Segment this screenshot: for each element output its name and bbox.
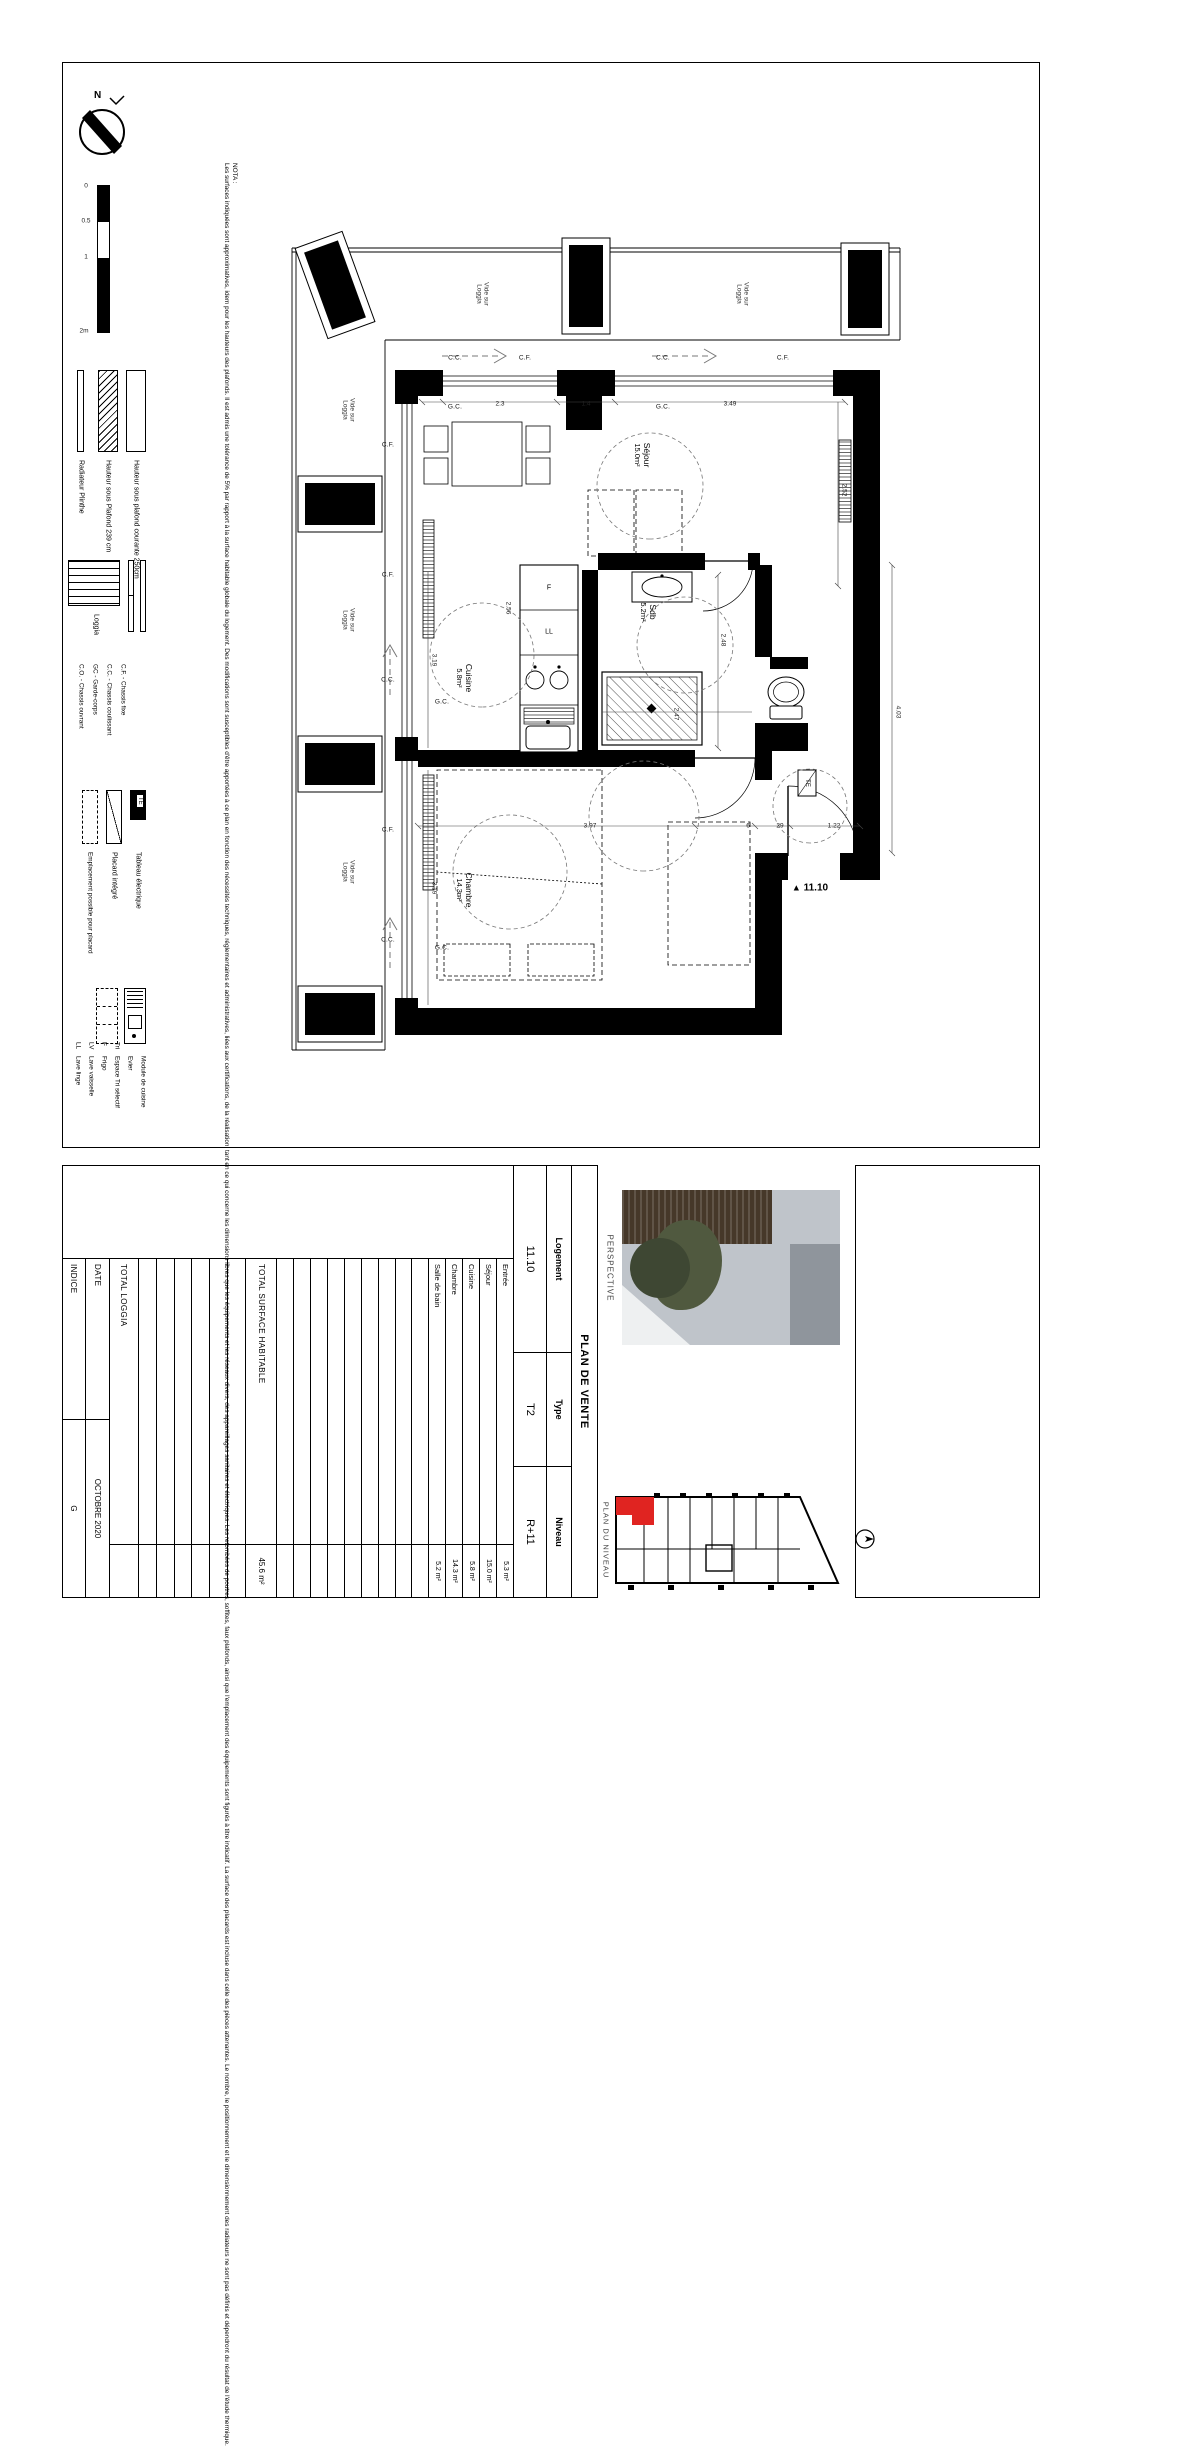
empty-row bbox=[344, 1259, 361, 1597]
perspective-caption: PERSPECTIVE bbox=[606, 1234, 615, 1301]
kitchen-block bbox=[520, 565, 578, 752]
window-label-cc: C.C. bbox=[448, 355, 462, 362]
window-label-gc: G.C. bbox=[435, 945, 449, 952]
legend-abbr-cf: C.F. - Chassis fixe bbox=[120, 664, 127, 716]
empty-row bbox=[191, 1259, 209, 1597]
spacer-column bbox=[63, 1166, 513, 1259]
dim: 3.19 bbox=[431, 882, 438, 895]
legend-kitchen-2: Espace Tri sélectif bbox=[114, 1056, 121, 1108]
plan-de-vente-sheet: { "sheet": { "nota_title": "NOTA :", "no… bbox=[0, 0, 1200, 1698]
legend-kitchen-1: Evier bbox=[127, 1056, 134, 1071]
niveau-value: R+11 bbox=[514, 1467, 546, 1597]
dim: 2.47 bbox=[673, 708, 680, 721]
room-area: 5.2 m² bbox=[429, 1544, 445, 1597]
dim: 1.4 bbox=[581, 401, 590, 408]
north-n-label: N bbox=[94, 90, 101, 101]
nota-block: NOTA : Les surfaces indiquées sont appro… bbox=[221, 163, 238, 353]
type-header: Type bbox=[547, 1353, 571, 1467]
legend-label-te: Tableau électrique bbox=[135, 852, 142, 909]
legend-abbr-gc: GC - Garde-corps bbox=[92, 664, 99, 715]
table-row: Salle de bain5.2 m² bbox=[428, 1259, 445, 1597]
total-surface-label: TOTAL SURFACE HABITABLE bbox=[257, 1259, 266, 1544]
table-row: Chambre14.3 m² bbox=[445, 1259, 462, 1597]
table-row: Entrée5.3 m² bbox=[496, 1259, 513, 1597]
empty-row bbox=[361, 1259, 378, 1597]
mini-compass-icon bbox=[852, 1526, 878, 1552]
date-value: OCTOBRE 2020 bbox=[86, 1419, 109, 1597]
indice-row: INDICE G bbox=[63, 1259, 85, 1597]
legend-label-emplacement: Emplacement possible pour placard bbox=[87, 852, 94, 954]
unit-marker: ▲ 11.10 bbox=[792, 883, 828, 894]
legend-te-text: TE bbox=[137, 795, 143, 807]
legend-loggia-icon bbox=[68, 560, 120, 606]
scale-bar bbox=[97, 185, 110, 333]
legend-label-loggia: Loggia bbox=[93, 614, 100, 635]
north-compass-icon: N bbox=[68, 88, 140, 168]
table bbox=[452, 422, 522, 486]
room-label-chambre: Chambre 14.3m² bbox=[455, 873, 473, 908]
window-label-gc: G.C. bbox=[656, 404, 670, 411]
empty-row bbox=[411, 1259, 428, 1597]
empty-row bbox=[395, 1259, 412, 1597]
indice-label: INDICE bbox=[70, 1259, 79, 1419]
total-surface-value: 45.6 m² bbox=[246, 1544, 276, 1597]
legend-sink-icon bbox=[124, 988, 146, 1044]
washer-label: LL bbox=[545, 629, 553, 636]
dim: 2.48 bbox=[720, 634, 727, 647]
total-loggia-label: TOTAL LOGGIA bbox=[119, 1259, 128, 1544]
dim: 3.97 bbox=[584, 823, 597, 830]
legend-kitchen-abbr-5: LL bbox=[75, 1042, 82, 1049]
logo-box bbox=[855, 1165, 1040, 1598]
dim: 6 bbox=[746, 823, 750, 830]
nota-body: Les surfaces indiquées sont approximativ… bbox=[221, 163, 229, 353]
table-row: Cuisine5.8 m² bbox=[462, 1259, 479, 1597]
scale-tick: 2m bbox=[79, 328, 88, 335]
legend-kitchen-4: Lave vaisselle bbox=[88, 1056, 95, 1096]
window-label-cf: C.F. bbox=[777, 355, 789, 362]
legend-te-icon: TE bbox=[130, 790, 146, 820]
niveau-header: Niveau bbox=[547, 1467, 571, 1597]
legend-label-radiateur: Radiateur Plinthe bbox=[78, 460, 85, 514]
empty-row bbox=[327, 1259, 344, 1597]
window-label-gc: G.C. bbox=[448, 404, 462, 411]
legend-label-239: Hauteur sous Plafond 239 cm bbox=[105, 460, 112, 552]
window-label-cf: C.F. bbox=[519, 355, 531, 362]
legend-abbr-co: C.O. - Chassis ouvrant bbox=[78, 664, 85, 729]
dim: 2.52 bbox=[841, 484, 848, 497]
empty-row bbox=[276, 1259, 293, 1597]
wardrobe bbox=[668, 822, 750, 965]
empty-row bbox=[378, 1259, 395, 1597]
window-label-cc: C.C. bbox=[656, 355, 670, 362]
dim: 1.22 bbox=[828, 823, 841, 830]
window-label-cf: C.F. bbox=[382, 827, 394, 834]
legend-abbr-cc: C.C. - Chassis coulissant bbox=[106, 664, 113, 735]
total-loggia-value bbox=[110, 1544, 138, 1597]
legend-kitchen-abbr-4: LV bbox=[88, 1042, 95, 1049]
room-label-sdb: Sdb 5.2m² bbox=[639, 602, 657, 621]
legend-kitchen-abbr-3: F bbox=[101, 1042, 108, 1046]
te-label: TE bbox=[804, 779, 810, 787]
legend-kitchen-3: Frigo bbox=[101, 1056, 108, 1071]
floor-plan bbox=[270, 230, 910, 1060]
dim: 2.3 bbox=[495, 401, 504, 408]
vide-sur-loggia-label: Vide sur Loggia bbox=[475, 276, 490, 312]
window-label-cf: C.F. bbox=[382, 442, 394, 449]
vide-sur-loggia-label: Vide sur Loggia bbox=[341, 854, 356, 890]
logement-value: 11.10 bbox=[514, 1166, 546, 1353]
scale-tick: 0.5 bbox=[81, 218, 90, 225]
window-label-cf: C.F. bbox=[382, 572, 394, 579]
empty-row bbox=[209, 1259, 227, 1597]
legend-kitchen-abbr-2: Tri bbox=[114, 1042, 121, 1049]
nota-title: NOTA : bbox=[230, 163, 238, 353]
type-value: T2 bbox=[514, 1353, 546, 1467]
total-surface-row: TOTAL SURFACE HABITABLE 45.6 m² bbox=[245, 1259, 276, 1597]
room-area: 5.8 m² bbox=[463, 1544, 479, 1597]
scale-tick: 1 bbox=[84, 254, 88, 261]
room-area: 15.0 m² bbox=[480, 1544, 496, 1597]
room-label-cuisine: Cuisine 5.8m² bbox=[455, 664, 473, 692]
legend-swatch-239 bbox=[98, 370, 118, 452]
empty-row bbox=[293, 1259, 310, 1597]
logement-header: Logement bbox=[547, 1166, 571, 1353]
date-row: DATE OCTOBRE 2020 bbox=[85, 1259, 109, 1597]
empty-row bbox=[227, 1259, 245, 1597]
title-table: PLAN DE VENTE Logement Type Niveau 11.10… bbox=[62, 1165, 598, 1598]
vide-sur-loggia-label: Vide sur Loggia bbox=[341, 392, 356, 428]
vide-sur-loggia-label: Vide sur Loggia bbox=[341, 602, 356, 638]
plan-de-vente-title: PLAN DE VENTE bbox=[579, 1334, 591, 1429]
empty-row bbox=[156, 1259, 174, 1597]
legend-radiator-icon bbox=[77, 370, 84, 452]
empty-row bbox=[174, 1259, 192, 1597]
dim: 3.19 bbox=[431, 654, 438, 667]
legend-label-placard: Placard intégré bbox=[111, 852, 118, 899]
unit-value-row: 11.10 T2 R+11 bbox=[513, 1166, 546, 1597]
window-label-gc: G.C. bbox=[435, 699, 449, 706]
scale-tick: 0 bbox=[84, 183, 88, 190]
legend-kitchen-0: Module de cuisine bbox=[140, 1056, 147, 1108]
key-plan bbox=[612, 1493, 844, 1591]
empty-row bbox=[310, 1259, 327, 1597]
legend-swatch-250 bbox=[126, 370, 146, 452]
window-label-cc: C.C. bbox=[381, 937, 395, 944]
room-label-entree: Entrée 5.3m² bbox=[788, 724, 806, 749]
table-row: Séjour15.0 m² bbox=[479, 1259, 496, 1597]
legend-window-icon bbox=[140, 560, 146, 632]
total-loggia-row: TOTAL LOGGIA bbox=[109, 1259, 138, 1597]
window-label-cc: C.C. bbox=[381, 677, 395, 684]
room-area: 5.3 m² bbox=[497, 1544, 513, 1597]
legend-placard-icon bbox=[106, 790, 122, 844]
room-label-sejour: Séjour 15.0m² bbox=[633, 443, 651, 468]
dim: 29 bbox=[776, 823, 783, 830]
landscape-sheet: Séjour 15.0m² Cuisine 5.8m² Sdb 5.2m² Ch… bbox=[0, 0, 1200, 1698]
key-plan-caption: PLAN DU NIVEAU bbox=[602, 1502, 611, 1579]
vide-sur-loggia-label: Vide sur Loggia bbox=[735, 276, 750, 312]
legend-kitchen-5: Lave linge bbox=[75, 1056, 82, 1085]
plan-de-vente-band: PLAN DE VENTE bbox=[571, 1166, 597, 1597]
unit-header-row: Logement Type Niveau bbox=[546, 1166, 571, 1597]
unit-number: 11.10 bbox=[804, 883, 828, 894]
legend-module-icon bbox=[96, 988, 118, 1044]
dim: 2.56 bbox=[505, 602, 512, 615]
indice-value: G bbox=[63, 1419, 85, 1597]
dim: 4.03 bbox=[895, 706, 902, 719]
legend-emplacement-icon bbox=[82, 790, 98, 844]
unit-direction-icon: ▲ bbox=[792, 883, 801, 893]
room-area: 14.3 m² bbox=[446, 1544, 462, 1597]
empty-row bbox=[138, 1259, 156, 1597]
dim: 3.49 bbox=[724, 401, 737, 408]
legend-window-icon bbox=[128, 560, 134, 632]
date-label: DATE bbox=[93, 1259, 102, 1419]
fridge-label: F bbox=[547, 585, 551, 592]
perspective-image bbox=[622, 1190, 840, 1345]
sink-basin bbox=[526, 726, 570, 749]
